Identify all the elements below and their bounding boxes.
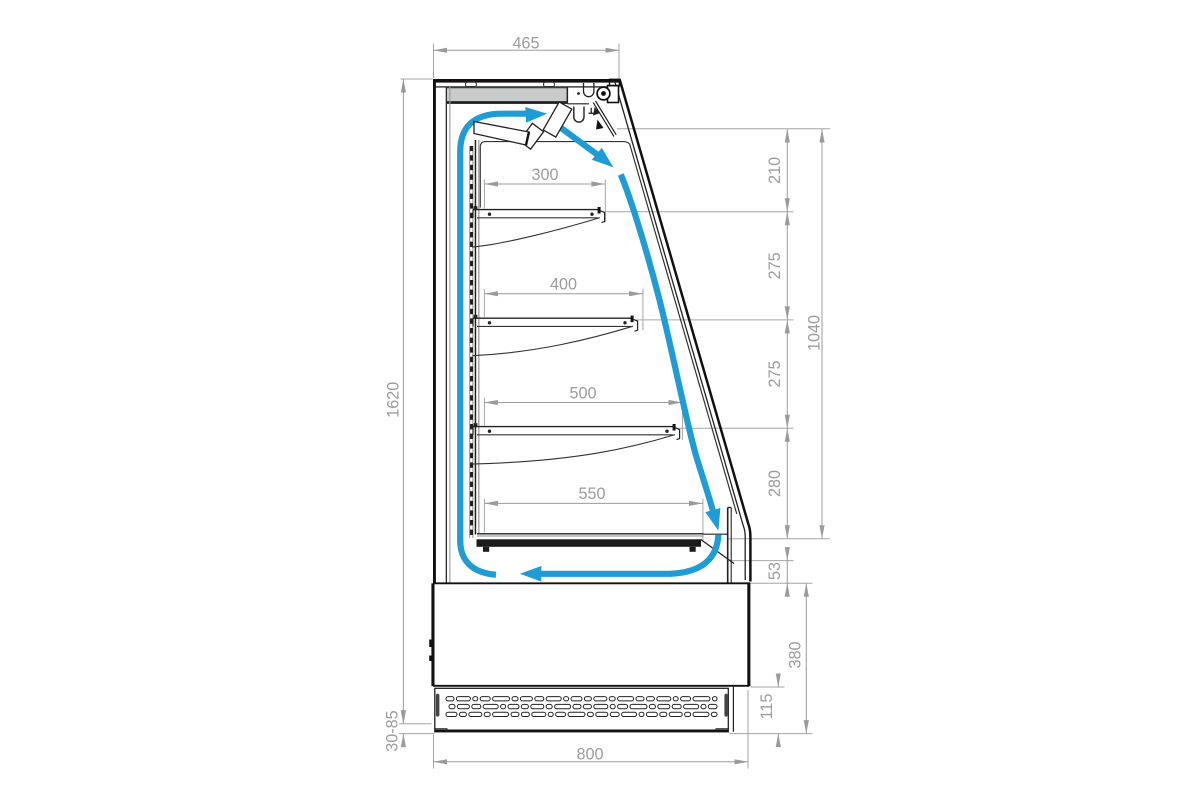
svg-text:53: 53: [766, 562, 784, 580]
svg-text:465: 465: [512, 35, 539, 53]
svg-text:30-85: 30-85: [383, 710, 401, 751]
svg-text:400: 400: [550, 276, 577, 294]
svg-text:380: 380: [787, 641, 805, 668]
svg-text:300: 300: [531, 166, 558, 184]
svg-text:275: 275: [766, 360, 784, 387]
svg-text:275: 275: [766, 252, 784, 279]
svg-text:115: 115: [758, 694, 776, 720]
svg-text:500: 500: [569, 384, 596, 402]
svg-text:1040: 1040: [806, 315, 824, 351]
svg-text:280: 280: [766, 470, 784, 497]
svg-text:210: 210: [766, 157, 784, 184]
svg-text:800: 800: [576, 746, 603, 764]
svg-text:1620: 1620: [384, 382, 402, 418]
svg-text:550: 550: [578, 485, 605, 503]
